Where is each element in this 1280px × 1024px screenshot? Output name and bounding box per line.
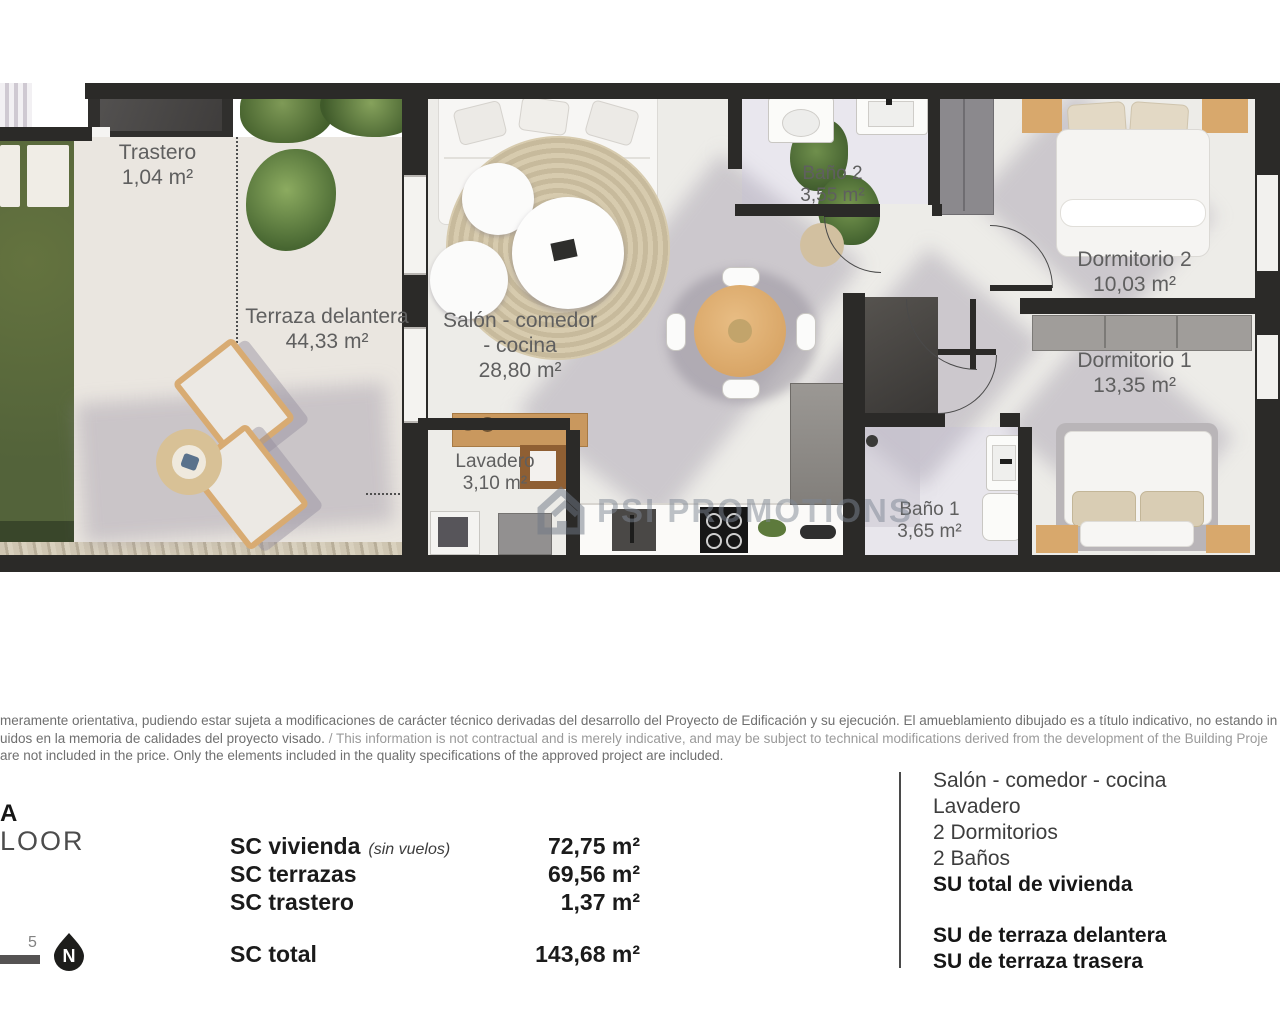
label-dormitorio1-name: Dormitorio 1 — [1052, 349, 1217, 374]
label-dormitorio2-name: Dormitorio 2 — [1052, 248, 1217, 273]
pouf-2 — [430, 241, 508, 319]
label-salon: Salón - comedor - cocina 28,80 m² — [430, 309, 610, 383]
wall-bano2-right — [928, 95, 940, 205]
label-trastero-name: Trastero — [90, 141, 225, 166]
bed-dorm2-duvet — [1056, 129, 1210, 257]
legend-list: Salón - comedor - cocina Lavadero 2 Dorm… — [933, 768, 1166, 898]
legend-divider — [899, 772, 901, 968]
legend-su-list: SU de terraza delantera SU de terraza tr… — [933, 923, 1166, 975]
label-dormitorio1-area: 13,35 m² — [1052, 374, 1217, 399]
wall-bano1-right — [1018, 427, 1032, 555]
label-dormitorio2-area: 10,03 m² — [1052, 273, 1217, 298]
sc-vivienda-note: (sin vuelos) — [368, 841, 450, 858]
plan-title-partial: A — [0, 800, 17, 828]
trastero-door-gap — [90, 127, 110, 137]
disclaimer-line-2-es: uidos en la memoria de calidades del pro… — [0, 731, 329, 746]
door-leaf-bano1 — [938, 349, 996, 355]
watermark: PSI PROMOTIONS — [535, 485, 913, 537]
scale-number: 5 — [28, 934, 37, 952]
wall-bano2-left — [728, 95, 742, 169]
closet-corridor — [936, 95, 994, 215]
legend-item-banos: 2 Baños — [933, 846, 1166, 872]
trastero-box-inner — [100, 95, 222, 131]
toilet-bano2-seat — [782, 109, 820, 137]
door-leaf-bano2 — [824, 211, 880, 217]
nightstand-dorm2-left — [1022, 99, 1062, 133]
window-right-2 — [1257, 335, 1278, 399]
sc-row-trastero: SC trastero — [230, 889, 354, 916]
sc-row-vivienda: SC vivienda(sin vuelos) — [230, 833, 450, 860]
sc-trastero-label: SC trastero — [230, 889, 354, 915]
sink-bano1-faucet — [1000, 459, 1012, 464]
label-dormitorio1: Dormitorio 1 13,35 m² — [1052, 349, 1217, 399]
wall-lavadero-top — [418, 418, 570, 430]
wall-bano1-top-stub — [1000, 413, 1020, 427]
legend-item-su-total: SU total de vivienda — [933, 872, 1166, 898]
label-trastero-area: 1,04 m² — [90, 166, 225, 191]
floor-label-partial: LOOR — [0, 826, 85, 857]
nightstand-dorm2-right — [1202, 99, 1248, 133]
sc-row-terrazas: SC terrazas — [230, 861, 357, 888]
bed-dorm2-blanket-roll — [1060, 199, 1206, 227]
sc-vivienda-value: 72,75 m² — [440, 833, 640, 860]
dining-chair-bottom — [722, 379, 760, 399]
legend-su-terraza-trasera: SU de terraza trasera — [933, 949, 1166, 975]
garden-pad-2 — [27, 145, 69, 207]
sc-terrazas-label: SC terrazas — [230, 861, 357, 887]
sc-total-label: SC total — [230, 941, 317, 967]
sc-terrazas-value: 69,56 m² — [440, 861, 640, 888]
dining-chair-top — [722, 267, 760, 287]
floor-plan: Trastero 1,04 m² Terraza delantera 44,33… — [0, 83, 1280, 572]
wall-bottom — [0, 555, 1280, 572]
wall-left-top — [0, 127, 92, 141]
disclaimer-line-2: uidos en la memoria de calidades del pro… — [0, 730, 1280, 748]
watermark-text: PSI PROMOTIONS — [597, 492, 913, 530]
nightstand-dorm1-left — [1036, 525, 1078, 553]
scale-bar — [0, 955, 40, 964]
legend-item-lavadero: Lavadero — [933, 794, 1166, 820]
pergola-louvers — [0, 83, 32, 129]
compass-north-icon: N — [52, 932, 86, 972]
washer-1-door — [438, 517, 468, 547]
label-trastero: Trastero 1,04 m² — [90, 141, 225, 191]
label-bano2-name: Baño 2 — [770, 163, 895, 185]
dining-centerpiece — [728, 319, 752, 343]
disclaimer-line-1: meramente orientativa, pudiendo estar su… — [0, 712, 1280, 730]
label-salon-name-2: - cocina — [430, 334, 610, 359]
closet-corridor-line — [963, 97, 965, 211]
wardrobe-dorm1-line-2 — [1176, 316, 1178, 348]
gravel-strip — [0, 542, 404, 555]
legend-item-salon: Salón - comedor - cocina — [933, 768, 1166, 794]
label-terraza: Terraza delantera 44,33 m² — [222, 305, 432, 355]
disclaimer-line-3: are not included in the price. Only the … — [0, 747, 1280, 765]
label-bano2-area: 3,55 m² — [770, 185, 895, 207]
wall-right — [1255, 83, 1280, 555]
wardrobe-dorm1-line-1 — [1104, 316, 1106, 348]
window-terrace-1 — [404, 175, 426, 275]
bed-dorm1-pillow-white — [1080, 521, 1194, 547]
psi-logo-house-icon — [535, 485, 587, 537]
window-right-1 — [1257, 175, 1278, 271]
label-terraza-area: 44,33 m² — [222, 330, 432, 355]
wall-top — [85, 83, 1280, 99]
sc-vivienda-label: SC vivienda — [230, 833, 360, 859]
wardrobe-dorm1 — [1032, 315, 1252, 351]
label-bano2: Baño 2 3,55 m² — [770, 163, 895, 208]
door-leaf-dorm2 — [990, 285, 1052, 291]
compass-letter: N — [63, 946, 76, 966]
label-terraza-name: Terraza delantera — [222, 305, 432, 330]
sc-trastero-value: 1,37 m² — [440, 889, 640, 916]
label-dormitorio2: Dormitorio 2 10,03 m² — [1052, 248, 1217, 298]
wall-dorm-divider — [1020, 298, 1255, 314]
disclaimer-line-2-en: / This information is not contractual an… — [329, 731, 1268, 746]
sofa-pillow-2 — [518, 96, 570, 136]
garden-pad-1 — [0, 145, 20, 207]
label-salon-area: 28,80 m² — [430, 359, 610, 384]
label-salon-name-1: Salón - comedor — [430, 309, 610, 334]
garden-grass-shadow — [0, 521, 74, 543]
legend-item-dormitorios: 2 Dormitorios — [933, 820, 1166, 846]
toilet-bano1 — [982, 493, 1022, 541]
nightstand-dorm1-right — [1206, 525, 1250, 553]
wall-bano1-top — [857, 413, 945, 427]
floor-plan-page: Trastero 1,04 m² Terraza delantera 44,33… — [0, 0, 1280, 1024]
wall-bano2-bottom-stub — [932, 204, 942, 216]
label-lavadero-name: Lavadero — [428, 451, 562, 473]
legend-su-terraza-delantera: SU de terraza delantera — [933, 923, 1166, 949]
dining-chair-left — [666, 313, 686, 351]
sc-total-value: 143,68 m² — [440, 941, 640, 968]
sc-row-total: SC total — [230, 941, 317, 968]
disclaimer-block: meramente orientativa, pudiendo estar su… — [0, 712, 1280, 765]
shower-head-bano1 — [866, 435, 878, 447]
dining-chair-right — [796, 313, 816, 351]
